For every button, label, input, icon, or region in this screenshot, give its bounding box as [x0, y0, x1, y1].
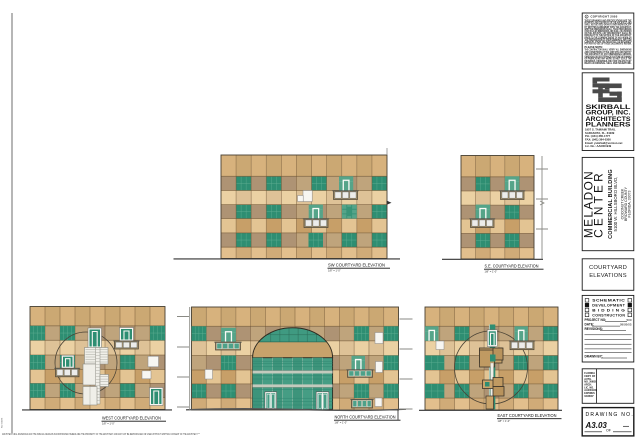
svg-text:S.E. COURTYARD ELEVATION: S.E. COURTYARD ELEVATION: [485, 264, 539, 269]
svg-text:OF: OF: [606, 429, 612, 433]
svg-text:ELEVATIONS: ELEVATIONS: [589, 273, 627, 279]
svg-text:SW COURTYARD ELEVATION: SW COURTYARD ELEVATION: [328, 263, 385, 268]
svg-text:500: 500: [626, 318, 631, 322]
svg-text:PLANNERS: PLANNERS: [586, 122, 631, 129]
svg-text:BEAR AN ORIGINAL SEAL AND SIGN: BEAR AN ORIGINAL SEAL AND SIGNATURE.: [585, 62, 632, 65]
svg-text:—: —: [623, 424, 629, 430]
svg-text:WEST COURTYARD ELEVATION: WEST COURTYARD ELEVATION: [102, 416, 161, 421]
svg-text:DRAWN BY:: DRAWN BY:: [585, 355, 603, 359]
svg-text:CONSTRUCTION: CONSTRUCTION: [592, 312, 625, 317]
svg-text:NORTH COURTYARD ELEVATION: NORTH COURTYARD ELEVATION: [335, 415, 396, 420]
svg-text:PROJECT NO:: PROJECT NO:: [585, 318, 607, 322]
svg-text:5100 W. HILLSBORO BLVD,: 5100 W. HILLSBORO BLVD,: [613, 177, 618, 232]
svg-text:02/28/07: 02/28/07: [584, 395, 594, 398]
svg-text:CENTER: CENTER: [592, 170, 606, 238]
svg-text:COURTYARD: COURTYARD: [589, 265, 627, 271]
svg-text:A3.03: A3.03: [585, 421, 608, 430]
svg-text:Lic. No.: AA0001949: Lic. No.: AA0001949: [585, 144, 612, 148]
svg-text:EAST COURTYARD ELEVATION: EAST COURTYARD ELEVATION: [498, 413, 557, 418]
svg-text:1/8" = 1'-0": 1/8" = 1'-0": [485, 269, 498, 273]
svg-text:FLORIDA, 33073: FLORIDA, 33073: [628, 191, 632, 218]
svg-text:1/8" = 1'-0": 1/8" = 1'-0": [498, 419, 511, 423]
svg-text:1/8" = 1'-0": 1/8" = 1'-0": [328, 268, 341, 272]
svg-text:ARCHITECTURAL DRAWINGS AND THE: ARCHITECTURAL DRAWINGS AND THE SPECIAL D…: [2, 433, 200, 436]
svg-text:NO. DATE: NO. DATE: [1, 417, 4, 428]
svg-text:09/09/05: 09/09/05: [620, 323, 632, 327]
svg-text:1/8" = 1'-0": 1/8" = 1'-0": [102, 421, 115, 425]
svg-text:DRAWING NO.: DRAWING NO.: [586, 412, 635, 418]
svg-text:1/8" = 1'-0": 1/8" = 1'-0": [335, 420, 348, 424]
svg-text:COPYRIGHT 2005: COPYRIGHT 2005: [591, 15, 618, 19]
